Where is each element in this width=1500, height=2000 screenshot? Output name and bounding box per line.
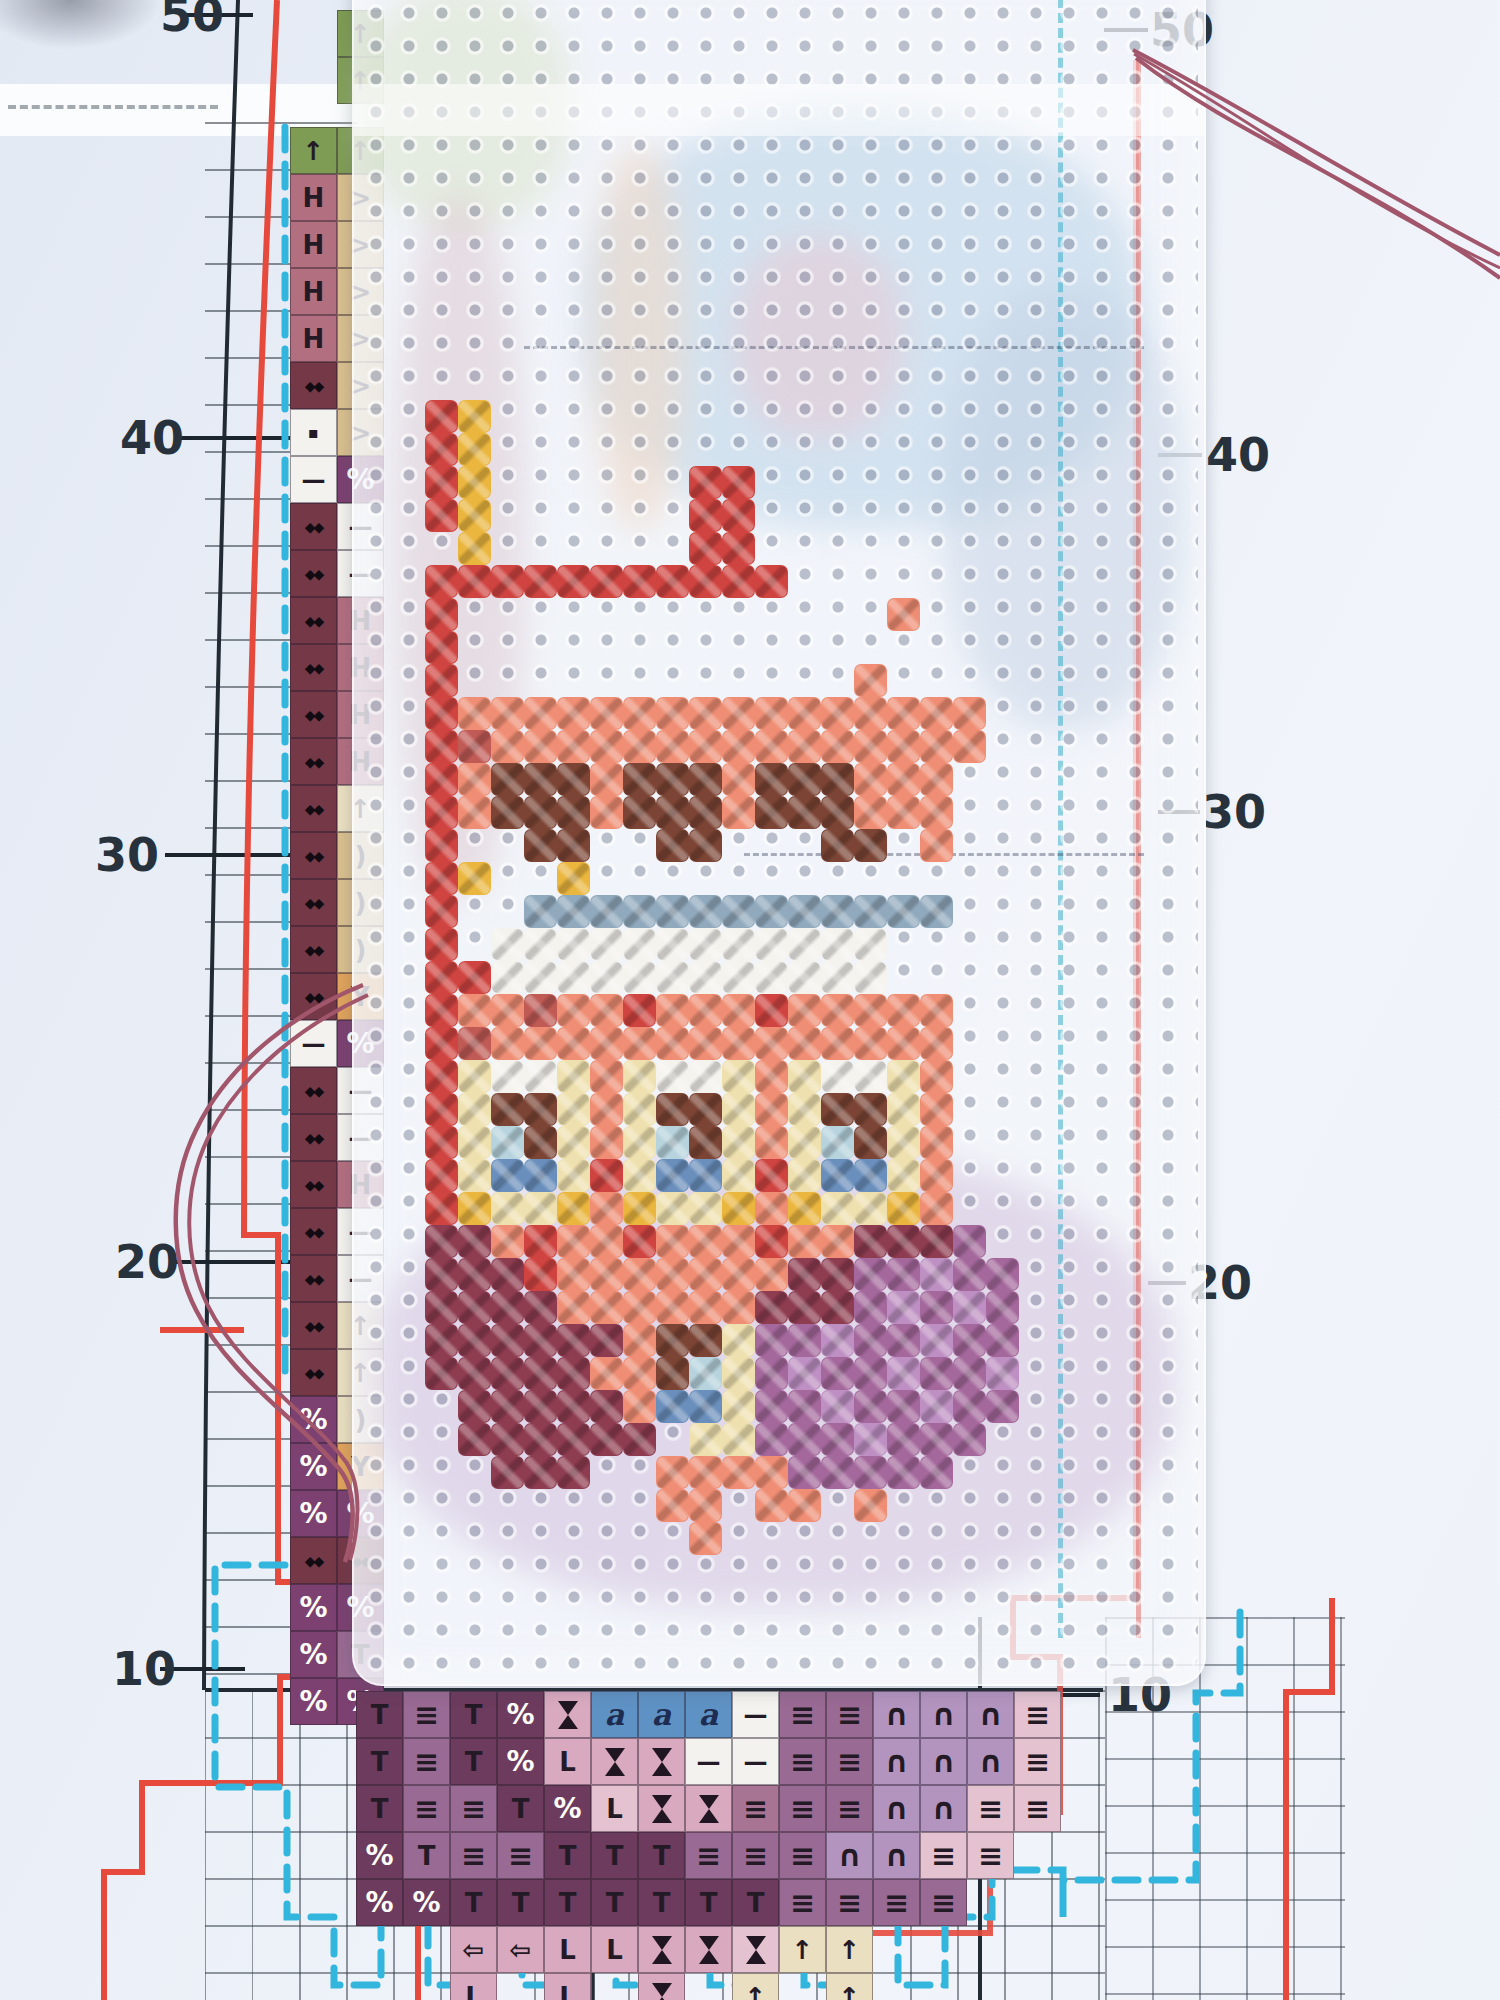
floss-thread-top-right — [1133, 50, 1500, 278]
cross-stitch-photo: ↑↑↑↑H>H>H>H>◆◆>▪>—%◆◆—◆◆—◆◆H◆◆H◆◆H◆◆H◆◆↑… — [0, 0, 1500, 2000]
floss-threads — [0, 0, 1500, 2000]
floss-thread-left-loop — [176, 985, 368, 1562]
